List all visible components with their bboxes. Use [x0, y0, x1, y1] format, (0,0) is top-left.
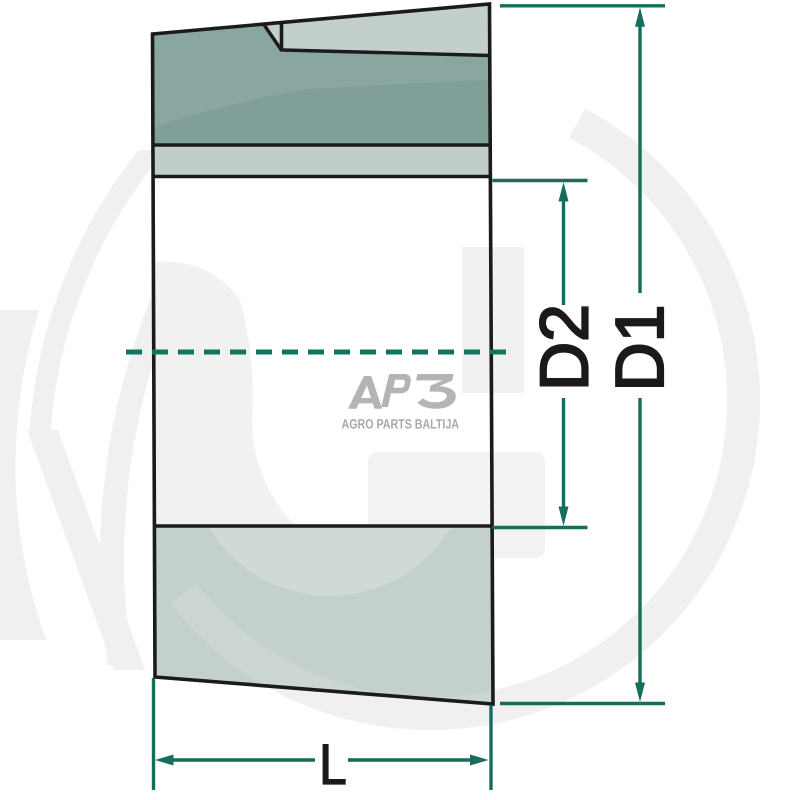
svg-text:AGRO PARTS BALTIJA: AGRO PARTS BALTIJA — [342, 417, 460, 432]
svg-text:D1: D1 — [602, 305, 678, 392]
svg-text:D2: D2 — [527, 304, 603, 391]
